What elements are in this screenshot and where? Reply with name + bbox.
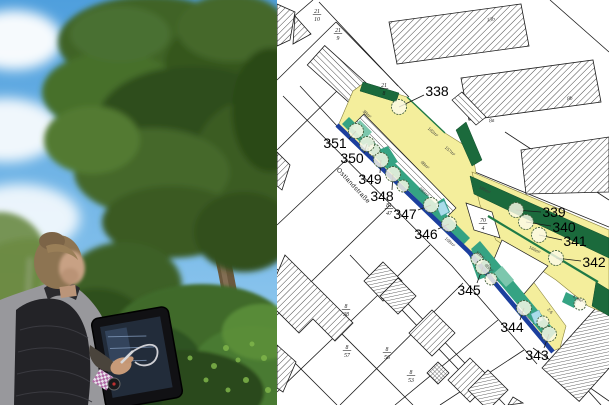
tree-number-344: 344	[500, 319, 524, 335]
parcel-number: 21	[381, 83, 387, 89]
parcel-number: 8	[410, 370, 413, 376]
map-panel: Ostlandstraße 33835135034934834734634534…	[277, 0, 609, 405]
tree-number-342: 342	[582, 254, 606, 270]
photo-panel	[0, 0, 277, 405]
parcel-number: 4	[482, 225, 485, 232]
tree-symbol-348	[386, 167, 401, 182]
tree-symbol-343	[542, 327, 557, 342]
parcel-number: 8	[345, 304, 348, 310]
tree-number-349: 349	[358, 171, 382, 187]
tree-number-341: 341	[563, 233, 587, 249]
parcel-number: 8	[383, 91, 386, 97]
photo-scene	[0, 0, 277, 405]
parcel-number: 9	[337, 36, 340, 42]
tree-number-338: 338	[425, 83, 449, 99]
tree-symbol-344	[517, 301, 532, 316]
tree-symbol-338	[392, 100, 407, 115]
tree-symbol	[397, 180, 409, 192]
parcel-number: 8	[386, 347, 389, 353]
tree-symbol-339	[509, 203, 524, 218]
tree-number-345: 345	[457, 282, 481, 298]
parcel-number: 38	[342, 312, 349, 318]
tree-symbol-351	[349, 124, 364, 139]
tree-number-348: 348	[370, 188, 394, 204]
tree-number-343: 343	[525, 347, 549, 363]
tree-symbol-347	[424, 198, 439, 213]
tree-number-346: 346	[414, 226, 438, 242]
parcel-number: 10	[314, 17, 320, 23]
tree-number-350: 350	[340, 150, 364, 166]
tree-symbol	[485, 273, 497, 285]
site-plan-map: Ostlandstraße 33835135034934834734634534…	[277, 0, 609, 405]
tree-symbol-342	[549, 251, 564, 266]
parcel-number: 70	[480, 218, 486, 224]
tree-symbol-341	[532, 228, 547, 243]
parcel-number: 21	[314, 9, 320, 15]
tree-number-351: 351	[323, 135, 347, 151]
tree-symbol-340	[519, 215, 534, 230]
parcel-number: 81	[386, 203, 392, 209]
parcel-number: 21	[335, 28, 341, 34]
parcel-number: 53	[408, 378, 414, 384]
tree-number-347: 347	[393, 206, 417, 222]
tree-number-339: 339	[542, 204, 566, 220]
tree-symbol-349	[374, 153, 389, 168]
split-image: Ostlandstraße 33835135034934834734634534…	[0, 0, 609, 405]
tree-symbol-346	[442, 217, 457, 232]
parcel-number: 56	[384, 355, 390, 361]
parcel-number: 8	[346, 345, 349, 351]
tree-symbol	[537, 316, 549, 328]
